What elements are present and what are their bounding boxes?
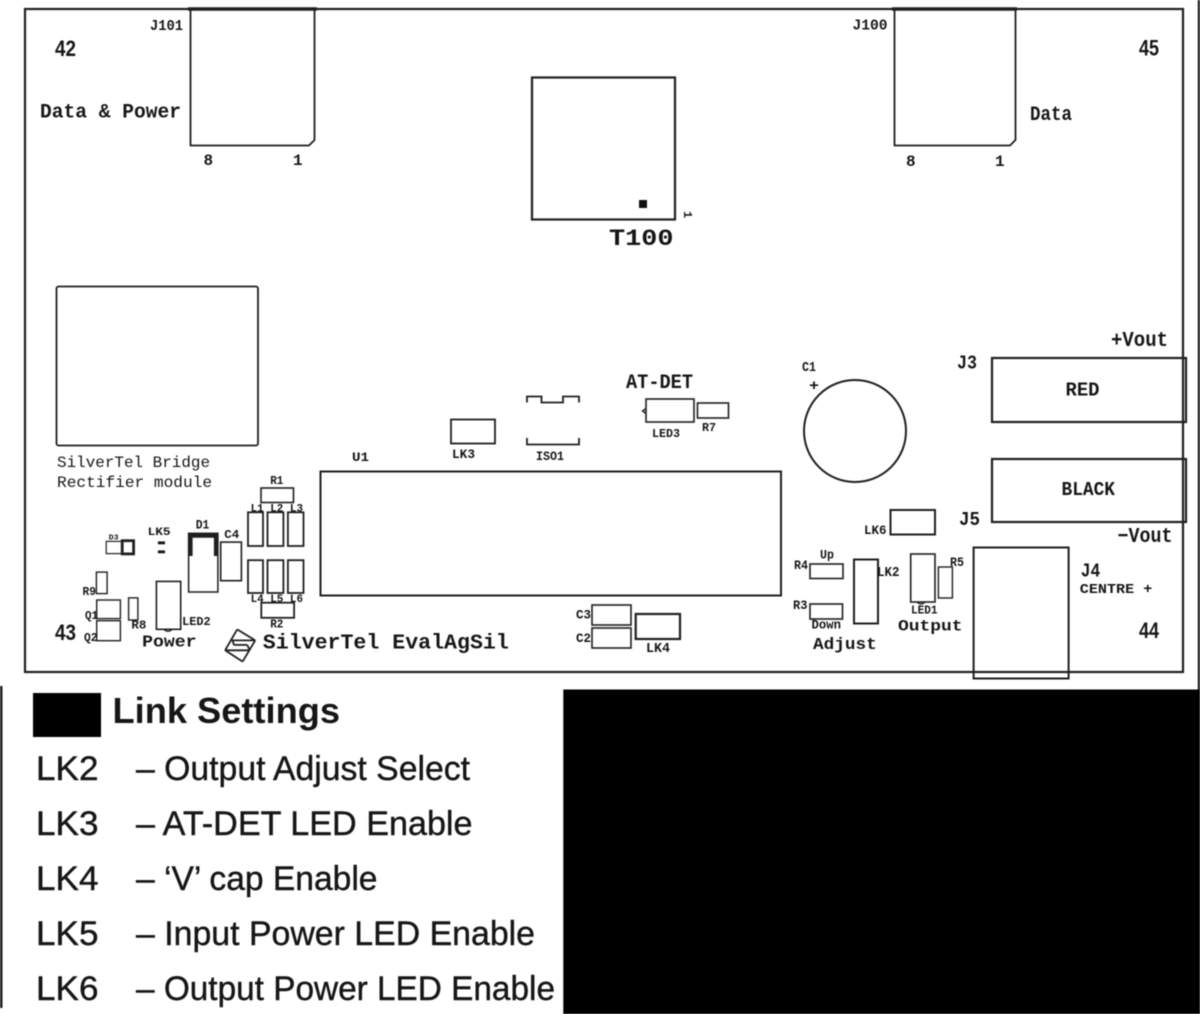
svg-text:LK5: LK5 [148, 527, 171, 539]
svg-text:– ‘V’ cap Enable: – ‘V’ cap Enable [136, 860, 378, 898]
svg-text:U1: U1 [352, 450, 369, 465]
svg-text:Adjust: Adjust [813, 635, 877, 654]
svg-text:J101: J101 [150, 18, 183, 35]
svg-text:Q2: Q2 [84, 631, 98, 645]
svg-text:Q1: Q1 [85, 609, 98, 623]
svg-text:RED: RED [1066, 380, 1100, 402]
svg-text:44: 44 [1139, 618, 1160, 643]
svg-text:Up: Up [820, 549, 834, 563]
svg-text:LK6: LK6 [864, 523, 887, 538]
svg-text:R9: R9 [83, 585, 97, 599]
svg-text:C2: C2 [576, 632, 591, 646]
svg-text:R1: R1 [270, 474, 283, 488]
svg-text:R3: R3 [793, 599, 808, 613]
svg-text:Data: Data [1030, 104, 1072, 127]
svg-text:R8: R8 [131, 619, 146, 633]
svg-text:1: 1 [995, 153, 1005, 171]
svg-text:L4 L5 L6: L4 L5 L6 [251, 594, 303, 606]
svg-text:– Output Adjust Select: – Output Adjust Select [136, 750, 471, 788]
svg-text:D1: D1 [196, 518, 210, 533]
svg-text:LED3: LED3 [652, 427, 680, 441]
svg-text:LK3: LK3 [36, 805, 99, 843]
svg-text:SilverTel EvalAgSil: SilverTel EvalAgSil [263, 633, 509, 656]
svg-text:ISO1: ISO1 [536, 449, 564, 464]
svg-text:LK4: LK4 [646, 642, 670, 657]
svg-text:J100: J100 [853, 18, 888, 35]
svg-text:D3: D3 [109, 534, 120, 542]
svg-text:Down: Down [812, 619, 842, 633]
svg-text:45: 45 [1139, 36, 1159, 61]
svg-text:C1: C1 [802, 360, 816, 376]
svg-text:LED1: LED1 [911, 604, 938, 618]
svg-text:L1 L2 L3: L1 L2 L3 [251, 503, 304, 515]
svg-text:AT-DET: AT-DET [626, 372, 693, 395]
svg-text:Power: Power [142, 633, 197, 652]
svg-text:C4: C4 [224, 528, 239, 542]
svg-text:LK3: LK3 [452, 447, 475, 462]
svg-text:+: + [809, 378, 819, 395]
svg-text:J3: J3 [957, 353, 977, 375]
svg-text:LK6: LK6 [36, 970, 99, 1008]
svg-text:R5: R5 [950, 556, 964, 570]
svg-text:R2: R2 [270, 618, 283, 632]
svg-text:1: 1 [680, 211, 694, 218]
svg-text:R7: R7 [702, 421, 716, 435]
svg-text:Data & Power: Data & Power [40, 102, 181, 125]
svg-text:−Vout: −Vout [1118, 526, 1173, 549]
svg-text:+Vout: +Vout [1111, 330, 1168, 353]
svg-text:1: 1 [293, 152, 303, 170]
svg-text:42: 42 [55, 36, 76, 61]
svg-text:8: 8 [204, 152, 214, 170]
svg-text:R4: R4 [794, 559, 808, 573]
svg-text:– Output Power LED Enable: – Output Power LED Enable [136, 970, 555, 1008]
svg-text:– Input Power LED Enable: – Input Power LED Enable [136, 915, 535, 953]
svg-text:Output: Output [898, 618, 963, 636]
svg-text:LK5: LK5 [36, 915, 99, 953]
svg-text:LK2: LK2 [877, 565, 900, 581]
svg-text:BLACK: BLACK [1062, 479, 1116, 501]
svg-text:– AT-DET LED Enable: – AT-DET LED Enable [136, 805, 473, 843]
svg-text:T100: T100 [609, 226, 674, 252]
svg-text:SilverTel Bridge: SilverTel Bridge [57, 454, 210, 472]
svg-text:Link Settings: Link Settings [113, 690, 341, 731]
svg-text:LK2: LK2 [36, 750, 99, 788]
svg-text:CENTRE +: CENTRE + [1080, 582, 1153, 598]
svg-text:LK4: LK4 [36, 860, 99, 898]
svg-text:J5: J5 [959, 509, 980, 531]
svg-text:LED2: LED2 [182, 615, 211, 629]
svg-text:J4: J4 [1081, 561, 1101, 583]
svg-text:Rectifier module: Rectifier module [57, 474, 212, 492]
svg-text:C3: C3 [576, 609, 591, 623]
svg-text:43: 43 [55, 620, 76, 645]
svg-text:8: 8 [906, 153, 916, 171]
